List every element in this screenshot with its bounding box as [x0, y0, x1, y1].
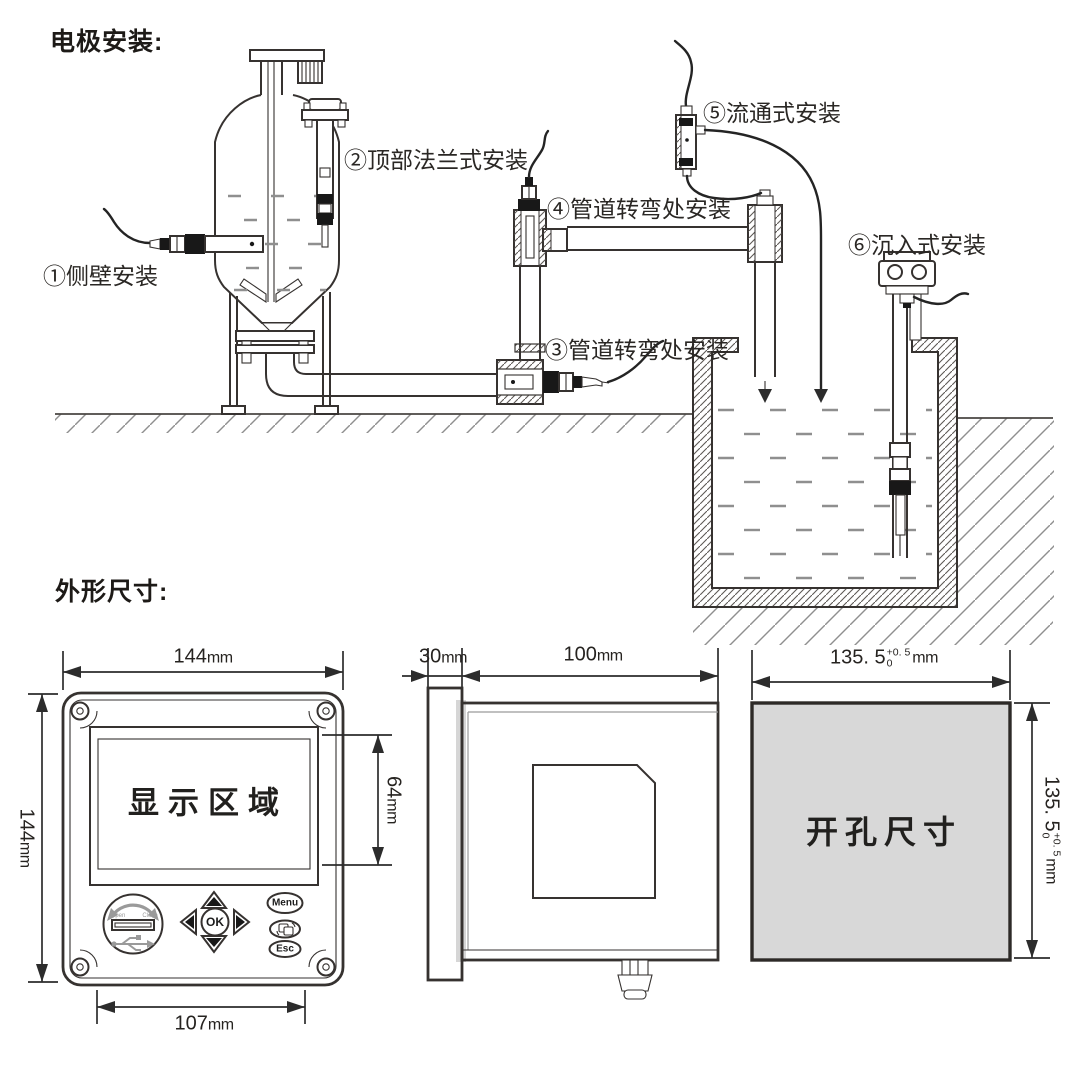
ground-left-hatch: [55, 414, 693, 433]
usb-cover: [104, 895, 163, 954]
down-pipe: [748, 190, 782, 403]
section-title-electrode: 电极安装:: [50, 22, 163, 58]
usb-open-label: Open: [111, 913, 126, 919]
menu-button-label: Menu: [272, 898, 298, 909]
basin: [693, 338, 957, 607]
label-pipe-bend-upper-install: ④管道转弯处安装: [547, 190, 731, 224]
reaction-tank: [104, 50, 497, 414]
down-arrow-key: [202, 936, 226, 952]
dim-front-width: 144mm: [173, 646, 232, 669]
left-arrow-key: [181, 910, 196, 934]
up-arrow-key: [202, 892, 226, 908]
label-side-wall-install: ①侧壁安装: [43, 257, 158, 291]
motor-icon: [298, 61, 322, 83]
dim-display-height: 64mm: [382, 776, 405, 824]
cutout-label: 开孔尺寸: [806, 807, 962, 853]
display-area-label: 显示区域: [128, 778, 288, 823]
label-pipe-bend-lower-install: ③管道转弯处安装: [545, 331, 729, 365]
page-switch-button: [270, 921, 300, 938]
side-body: [462, 703, 718, 960]
usb-icon: [111, 935, 155, 950]
stirrer: [240, 61, 302, 302]
label-top-flange-install: ②顶部法兰式安装: [344, 141, 528, 175]
ok-key-label: OK: [206, 915, 224, 929]
dim-front-height: 144mm: [15, 808, 38, 867]
front-view: [28, 651, 392, 1024]
right-arrow-key: [234, 910, 249, 934]
electrode-top-flange: [302, 99, 348, 247]
page-switch-icon: [277, 923, 295, 935]
dim-cutout-width: 135. 5+0. 50mm: [830, 647, 938, 670]
ground-right-hatch: [693, 418, 1054, 645]
bottom-flange-pipe: [236, 323, 497, 396]
dim-body-depth: 100mm: [563, 644, 622, 667]
dim-keypad-width: 107mm: [174, 1013, 233, 1036]
pipe-tee-upper: [514, 131, 750, 360]
esc-button-label: Esc: [276, 944, 294, 955]
label-flow-through-install: ⑤流通式安装: [703, 94, 841, 128]
dim-bezel-depth: 30mm: [419, 646, 467, 669]
cutout-view: [752, 650, 1050, 960]
section-title-dimensions: 外形尺寸:: [55, 572, 168, 608]
side-view: [402, 648, 718, 999]
dim-cutout-height: 135. 5+0. 50mm: [1040, 776, 1063, 884]
cable-gland: [618, 960, 652, 999]
electrode-side-wall: [104, 209, 263, 254]
usb-close-label: Close: [142, 913, 157, 919]
label-submersion-install: ⑥沉入式安装: [848, 226, 986, 260]
manual-page: 电极安装: 外形尺寸: ①侧壁安装 ②顶部法兰式安装 ③管道转弯处安装 ④管道转…: [0, 0, 1080, 1085]
technical-diagram: [0, 0, 1080, 1085]
